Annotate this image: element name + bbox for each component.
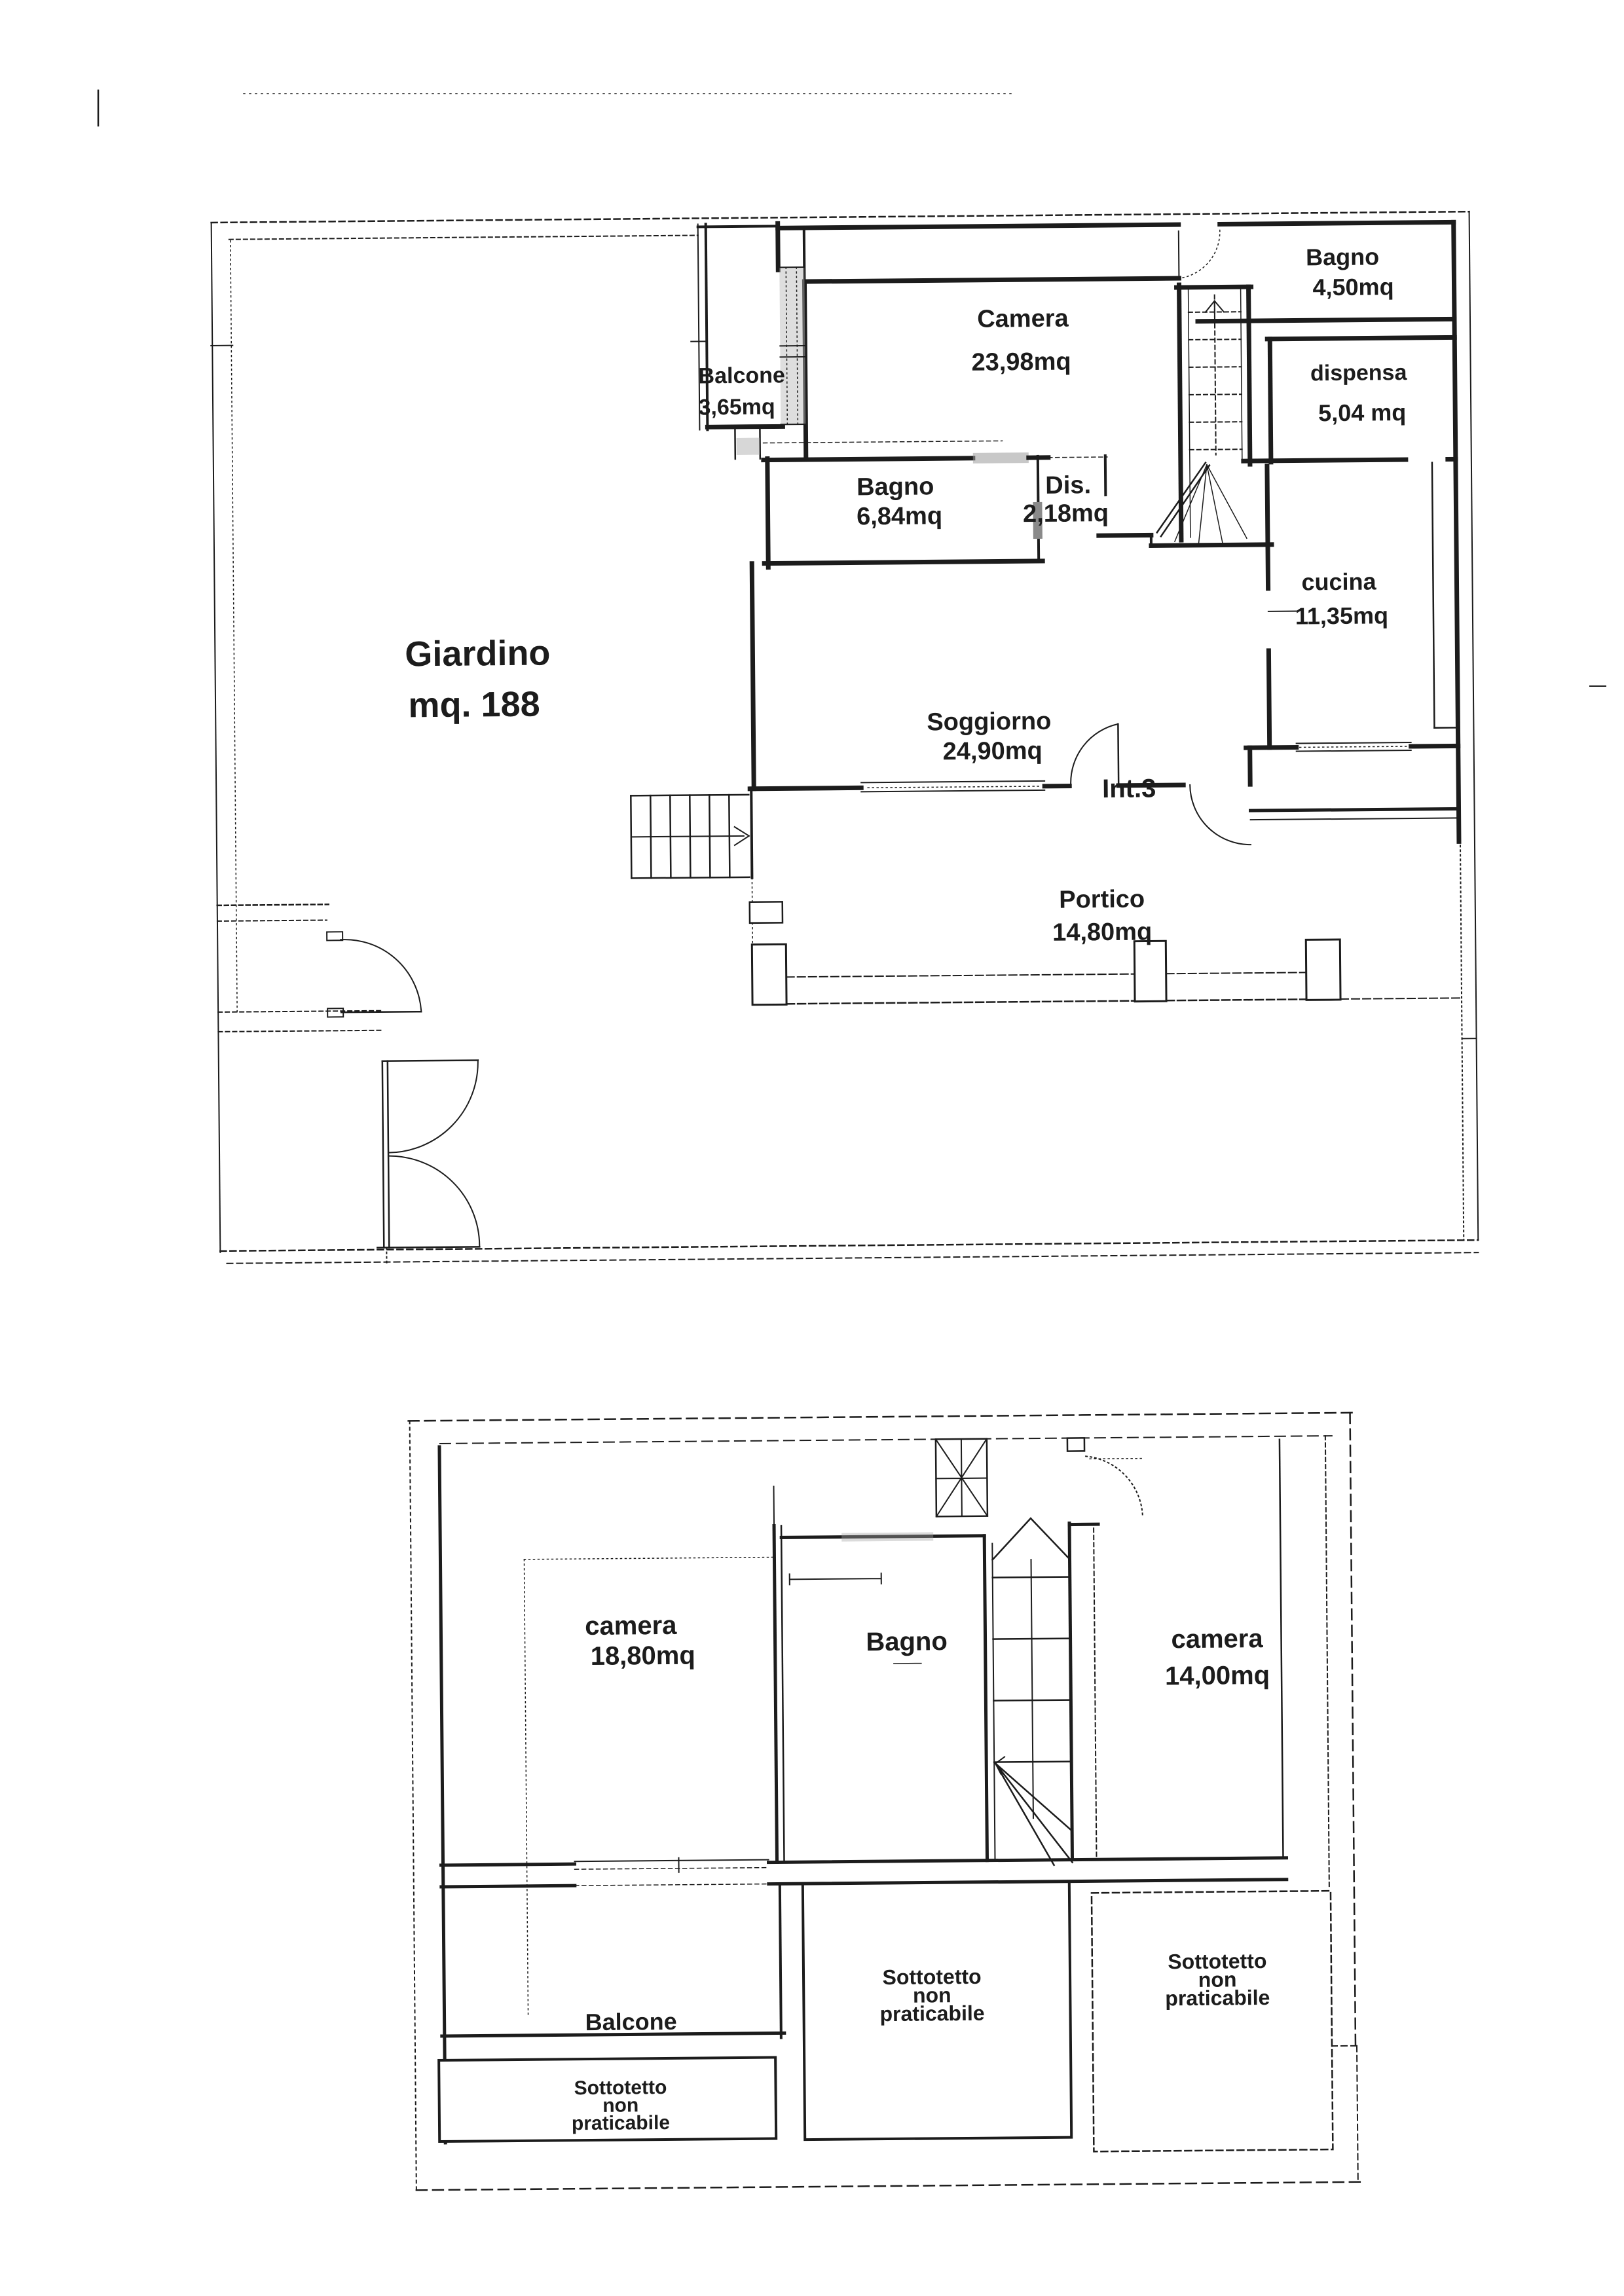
window-hatch [841,1532,933,1541]
attic-floor-plan: camera 18,80mq Bagno camera 14,00mq Balc… [409,1413,1363,2194]
door-hinge-pad [1067,1438,1084,1451]
room-label-balcone: Balcone [585,2008,676,2035]
room-label-camera: Camera [977,305,1069,333]
wall-hatch [737,438,760,455]
room-area-dispensa: 5,04 mq [1318,399,1406,426]
room-area-bagno: 6,84mq [857,502,942,530]
stair-direction-arrow [992,1518,1070,1560]
svg-text:praticabile: praticabile [572,2112,670,2134]
gate-door-arc [341,939,421,1011]
bagno-nord-door-arc [1179,230,1221,279]
pillar [1134,941,1166,1001]
room-label-cucina: cucina [1301,568,1376,595]
room-area-balcone: 3,65mq [698,394,775,420]
attic-entry-door-arc [1086,1456,1143,1518]
svg-text:praticabile: praticabile [1165,1986,1270,2010]
svg-text:praticabile: praticabile [879,2001,984,2026]
room-label-bagno-nord: Bagno [1306,243,1379,270]
room-label-bagno: Bagno [857,473,934,501]
room-area-bagno-nord: 4,50mq [1312,273,1393,301]
room-area-giardino: mq. 188 [408,685,540,725]
window-hatch [973,452,1029,464]
room-area-soggiorno: 24,90mq [943,737,1043,765]
double-gate-arc [388,1061,479,1152]
room-labels-attic: camera 18,80mq Bagno camera 14,00mq Balc… [567,1606,1274,2134]
scan-artifacts [98,90,1606,686]
room-label-balcone: Balcone [698,363,785,388]
building-walls [690,217,1459,848]
room-label-camera-left: camera [585,1611,677,1641]
pillar [752,944,786,1004]
garden-gates [217,903,480,1267]
floor-plan-scan: Giardino mq. 188 Balcone 3,65mq Camera 2… [0,0,1624,2296]
sottotetto-label-middle: Sottotetto non praticabile [879,1965,985,2026]
internal-staircase [1155,284,1253,547]
attic-walls [434,1439,1333,2157]
room-area-camera-left: 18,80mq [591,1641,695,1671]
room-label-portico: Portico [1059,886,1145,914]
room-area-cucina: 11,35mq [1295,602,1388,629]
room-area-dis: 2,18mq [1023,500,1109,528]
ground-floor-plan: Giardino mq. 188 Balcone 3,65mq Camera 2… [210,211,1479,1267]
gate-leaf [341,1011,421,1012]
room-label-dispensa: dispensa [1310,360,1408,386]
sottotetto-label-right: Sottotetto non praticabile [1165,1949,1270,2010]
wall-pier [750,902,783,922]
room-area-portico: 14,80mq [1052,918,1152,946]
room-area-camera-right: 14,00mq [1165,1661,1270,1690]
room-label-camera-right: camera [1171,1624,1263,1654]
room-label-giardino: Giardino [405,633,551,674]
pillar [1306,939,1340,1000]
attic-staircase [936,1438,1147,1867]
room-area-camera: 23,98mq [971,348,1071,376]
room-label-dis: Dis. [1045,471,1091,500]
room-label-bagno: Bagno [866,1627,948,1656]
garden-boundary [210,211,1479,1264]
sottotetto-room-right [1092,1891,1333,2151]
room-labels-ground: Giardino mq. 188 Balcone 3,65mq Camera 2… [401,243,1412,952]
unit-label-int3: Int.3 [1102,774,1156,803]
entry-door-arc [1190,784,1251,845]
double-gate-arc [388,1155,479,1246]
room-label-soggiorno: Soggiorno [927,708,1051,737]
external-staircase [631,795,749,879]
